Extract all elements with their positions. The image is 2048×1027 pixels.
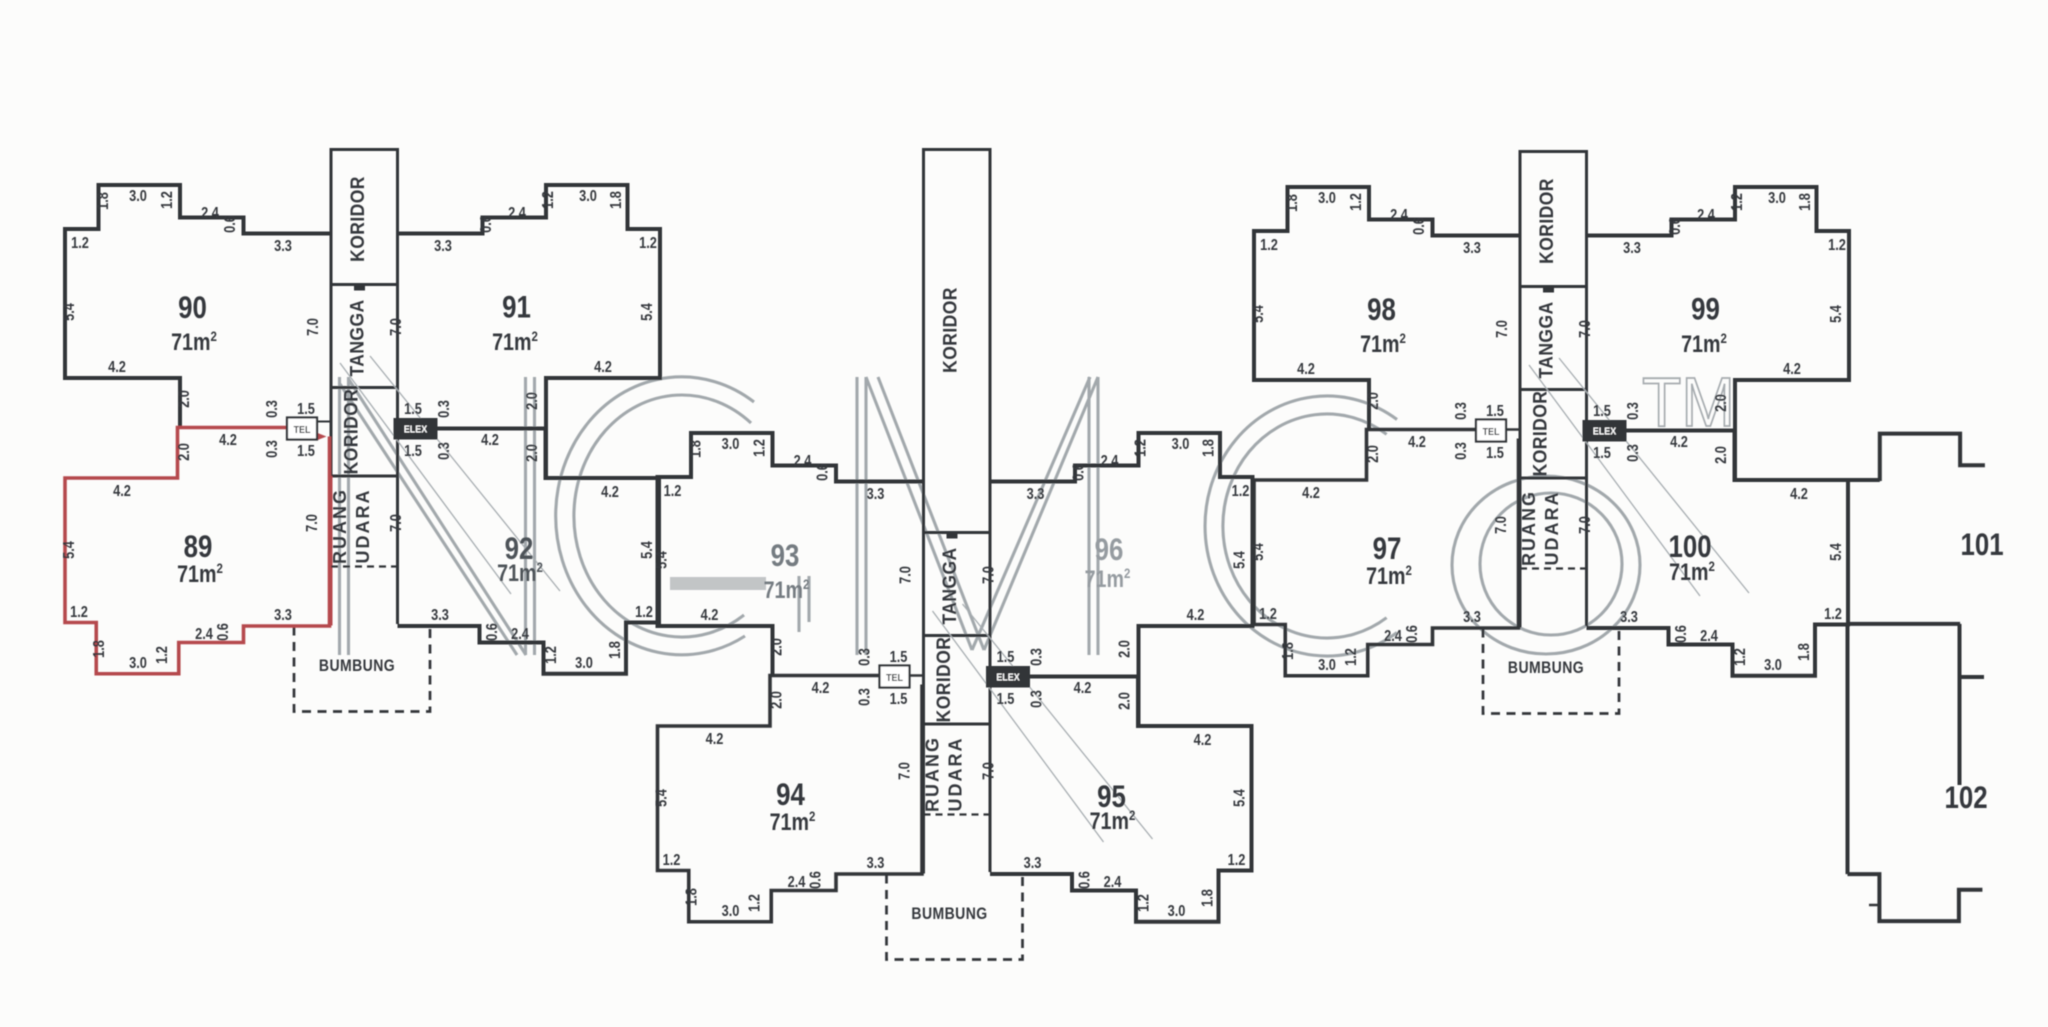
svg-text:0.6: 0.6 — [478, 215, 496, 233]
svg-text:3.3: 3.3 — [431, 607, 449, 625]
svg-text:4.2: 4.2 — [1194, 732, 1212, 750]
svg-text:7.0: 7.0 — [1494, 320, 1512, 338]
svg-text:7.0: 7.0 — [304, 514, 322, 532]
svg-text:1.5: 1.5 — [890, 649, 908, 667]
svg-text:TANGGA: TANGGA — [346, 299, 368, 376]
svg-text:1.2: 1.2 — [1132, 439, 1150, 457]
svg-text:1.2: 1.2 — [635, 604, 653, 622]
svg-text:1.8: 1.8 — [1280, 642, 1298, 660]
svg-text:2.4: 2.4 — [1697, 207, 1715, 225]
svg-text:KORIDOR: KORIDOR — [340, 389, 362, 475]
svg-text:1.5: 1.5 — [297, 443, 315, 461]
svg-text:0.6: 0.6 — [215, 623, 233, 641]
svg-text:4.2: 4.2 — [1187, 607, 1205, 625]
svg-text:2.4: 2.4 — [1101, 453, 1119, 471]
svg-text:3.0: 3.0 — [1768, 190, 1786, 208]
svg-text:1.8: 1.8 — [687, 440, 705, 458]
svg-text:2.0: 2.0 — [768, 691, 786, 709]
svg-text:1.2: 1.2 — [1348, 193, 1366, 211]
svg-text:7.0: 7.0 — [980, 566, 998, 584]
svg-text:1.2: 1.2 — [543, 646, 561, 664]
svg-text:7.0: 7.0 — [896, 762, 914, 780]
svg-text:0.3: 0.3 — [264, 400, 282, 418]
svg-text:1.5: 1.5 — [1593, 445, 1611, 463]
svg-text:7.0: 7.0 — [388, 318, 406, 336]
svg-text:3.0: 3.0 — [1172, 436, 1190, 454]
svg-text:1.8: 1.8 — [95, 192, 113, 210]
svg-text:7.0: 7.0 — [388, 514, 406, 532]
svg-text:0.3: 0.3 — [856, 648, 874, 666]
svg-text:5.4: 5.4 — [1828, 543, 1846, 561]
svg-text:1.5: 1.5 — [890, 691, 908, 709]
svg-text:1.2: 1.2 — [751, 439, 769, 457]
svg-text:2.0: 2.0 — [768, 638, 786, 656]
svg-text:3.0: 3.0 — [1318, 657, 1336, 675]
svg-text:7.0: 7.0 — [897, 566, 915, 584]
svg-text:3.0: 3.0 — [722, 903, 740, 921]
svg-text:2.4: 2.4 — [1390, 207, 1408, 225]
svg-text:2.0: 2.0 — [1365, 392, 1383, 410]
svg-text:5.4: 5.4 — [653, 789, 671, 807]
svg-text:1.5: 1.5 — [404, 401, 422, 419]
svg-text:2.4: 2.4 — [1104, 874, 1122, 892]
svg-text:4.2: 4.2 — [1297, 361, 1315, 379]
svg-text:BUMBUNG: BUMBUNG — [319, 657, 395, 675]
svg-text:3.3: 3.3 — [1463, 240, 1481, 258]
svg-text:BUMBUNG: BUMBUNG — [911, 905, 987, 923]
svg-text:71m2: 71m2 — [1085, 565, 1131, 593]
svg-text:0.6: 0.6 — [814, 463, 832, 481]
svg-text:1.2: 1.2 — [1260, 237, 1278, 255]
svg-text:ELEX: ELEX — [996, 672, 1020, 684]
svg-text:0.3: 0.3 — [264, 440, 282, 458]
svg-text:ELEX: ELEX — [404, 424, 428, 436]
svg-text:2.0: 2.0 — [1713, 446, 1731, 464]
svg-text:2.0: 2.0 — [1713, 394, 1731, 412]
svg-text:1.2: 1.2 — [1343, 648, 1361, 666]
svg-text:2.0: 2.0 — [176, 390, 194, 408]
svg-text:1.8: 1.8 — [1199, 889, 1217, 907]
svg-text:TEL: TEL — [886, 672, 903, 684]
svg-text:ELEX: ELEX — [1593, 426, 1617, 438]
svg-text:71m2: 71m2 — [1681, 330, 1727, 358]
svg-text:KORIDOR: KORIDOR — [1535, 178, 1557, 264]
svg-text:0.6: 0.6 — [1404, 625, 1422, 643]
svg-text:71m2: 71m2 — [492, 328, 538, 356]
svg-text:0.3: 0.3 — [1028, 690, 1046, 708]
svg-text:2.0: 2.0 — [1116, 640, 1134, 658]
svg-text:2.0: 2.0 — [524, 392, 542, 410]
svg-text:2.4: 2.4 — [794, 453, 812, 471]
svg-text:1.5: 1.5 — [997, 649, 1015, 667]
svg-text:KORIDOR: KORIDOR — [1529, 391, 1551, 477]
svg-text:2.4: 2.4 — [788, 874, 806, 892]
svg-text:3.0: 3.0 — [579, 188, 597, 206]
svg-text:7.0: 7.0 — [1577, 320, 1595, 338]
svg-text:3.3: 3.3 — [274, 238, 292, 256]
svg-text:1.2: 1.2 — [1259, 606, 1277, 624]
svg-text:2.0: 2.0 — [1116, 692, 1134, 710]
svg-text:0.6: 0.6 — [1070, 463, 1088, 481]
svg-text:0.6: 0.6 — [1411, 217, 1429, 235]
svg-text:1.8: 1.8 — [608, 191, 626, 209]
svg-text:1.2: 1.2 — [639, 235, 657, 253]
svg-text:4.2: 4.2 — [1790, 486, 1808, 504]
svg-text:1.2: 1.2 — [1135, 894, 1153, 912]
svg-text:4.2: 4.2 — [1670, 434, 1688, 452]
svg-text:1.2: 1.2 — [1828, 237, 1846, 255]
svg-text:3.0: 3.0 — [722, 436, 740, 454]
svg-text:0.6: 0.6 — [807, 871, 825, 889]
svg-text:1.5: 1.5 — [997, 691, 1015, 709]
svg-text:2.0: 2.0 — [176, 443, 194, 461]
svg-text:102: 102 — [1944, 781, 1987, 816]
svg-text:99: 99 — [1691, 292, 1720, 327]
svg-text:96: 96 — [1095, 533, 1124, 568]
svg-text:3.0: 3.0 — [129, 655, 147, 673]
svg-text:71m2: 71m2 — [1366, 562, 1412, 590]
svg-text:1.2: 1.2 — [159, 191, 177, 209]
svg-text:4.2: 4.2 — [219, 432, 237, 450]
svg-text:4.2: 4.2 — [1074, 680, 1092, 698]
svg-text:1.5: 1.5 — [1486, 445, 1504, 463]
svg-text:TANGGA: TANGGA — [938, 547, 960, 624]
svg-text:0.3: 0.3 — [436, 400, 454, 418]
svg-text:2.4: 2.4 — [1384, 628, 1402, 646]
svg-text:UDARA: UDARA — [353, 489, 373, 564]
svg-text:1.2: 1.2 — [1732, 648, 1750, 666]
svg-text:2.4: 2.4 — [511, 626, 529, 644]
svg-text:4.2: 4.2 — [594, 359, 612, 377]
svg-text:71m2: 71m2 — [1669, 558, 1715, 586]
svg-text:91: 91 — [502, 290, 531, 325]
svg-text:1.2: 1.2 — [663, 852, 681, 870]
svg-text:0.6: 0.6 — [1076, 871, 1094, 889]
svg-text:0.3: 0.3 — [1625, 444, 1643, 462]
svg-text:71m2: 71m2 — [1360, 330, 1406, 358]
svg-text:7.0: 7.0 — [305, 318, 323, 336]
svg-text:1.8: 1.8 — [1200, 439, 1218, 457]
svg-text:2.0: 2.0 — [1365, 445, 1383, 463]
svg-text:2.4: 2.4 — [508, 205, 526, 223]
svg-text:KORIDOR: KORIDOR — [346, 176, 368, 262]
svg-text:1.8: 1.8 — [1797, 193, 1815, 211]
svg-text:7.0: 7.0 — [980, 762, 998, 780]
svg-text:3.3: 3.3 — [867, 855, 885, 873]
svg-text:1.5: 1.5 — [404, 443, 422, 461]
svg-text:5.4: 5.4 — [1231, 789, 1249, 807]
svg-text:0.6: 0.6 — [484, 623, 502, 641]
svg-text:1.8: 1.8 — [91, 640, 109, 658]
svg-text:3.0: 3.0 — [1764, 657, 1782, 675]
svg-text:5.4: 5.4 — [653, 551, 671, 569]
svg-text:0.3: 0.3 — [436, 442, 454, 460]
svg-text:4.2: 4.2 — [1302, 485, 1320, 503]
svg-text:3.3: 3.3 — [1620, 609, 1638, 627]
svg-text:BUMBUNG: BUMBUNG — [1508, 659, 1584, 677]
svg-text:1.5: 1.5 — [1486, 403, 1504, 421]
svg-text:5.4: 5.4 — [61, 303, 79, 321]
svg-text:71m2: 71m2 — [1090, 807, 1136, 835]
svg-text:3.3: 3.3 — [1623, 240, 1641, 258]
svg-text:3.3: 3.3 — [1024, 855, 1042, 873]
svg-text:101: 101 — [1960, 528, 2003, 563]
svg-text:3.3: 3.3 — [867, 486, 885, 504]
svg-text:0.6: 0.6 — [1673, 625, 1691, 643]
svg-text:3.0: 3.0 — [1318, 190, 1336, 208]
svg-text:71m2: 71m2 — [177, 560, 223, 588]
svg-text:2.4: 2.4 — [201, 205, 219, 223]
svg-text:3.3: 3.3 — [1463, 609, 1481, 627]
svg-text:0.3: 0.3 — [856, 688, 874, 706]
svg-text:1.2: 1.2 — [70, 604, 88, 622]
svg-text:1.8: 1.8 — [607, 641, 625, 659]
svg-text:71m2: 71m2 — [171, 328, 217, 356]
svg-text:4.2: 4.2 — [601, 484, 619, 502]
svg-text:1.2: 1.2 — [1232, 483, 1250, 501]
svg-text:98: 98 — [1367, 293, 1396, 328]
svg-text:UDARA: UDARA — [946, 737, 966, 812]
svg-text:1.2: 1.2 — [540, 191, 558, 209]
svg-text:RUANG: RUANG — [923, 736, 943, 812]
svg-text:71m2: 71m2 — [497, 559, 543, 587]
svg-text:2.0: 2.0 — [524, 444, 542, 462]
svg-text:1.2: 1.2 — [664, 483, 682, 501]
svg-text:RUANG: RUANG — [330, 488, 350, 564]
svg-text:71m2: 71m2 — [770, 808, 816, 836]
svg-text:4.2: 4.2 — [1408, 434, 1426, 452]
svg-text:TEL: TEL — [294, 424, 311, 436]
svg-text:7.0: 7.0 — [1493, 516, 1511, 534]
svg-text:3.3: 3.3 — [434, 238, 452, 256]
svg-text:0.3: 0.3 — [1453, 442, 1471, 460]
svg-text:4.2: 4.2 — [113, 483, 131, 501]
svg-text:RUANG: RUANG — [1519, 490, 1539, 566]
svg-text:KORIDOR: KORIDOR — [939, 287, 961, 373]
svg-text:0.3: 0.3 — [1625, 402, 1643, 420]
svg-text:0.6: 0.6 — [222, 215, 240, 233]
svg-text:5.4: 5.4 — [1250, 305, 1268, 323]
svg-text:0.6: 0.6 — [1667, 217, 1685, 235]
svg-text:5.4: 5.4 — [639, 303, 657, 321]
svg-text:5.4: 5.4 — [1250, 543, 1268, 561]
svg-text:TEL: TEL — [1483, 426, 1500, 438]
svg-text:1.2: 1.2 — [1729, 193, 1747, 211]
svg-text:4.2: 4.2 — [108, 359, 126, 377]
svg-text:4.2: 4.2 — [812, 680, 830, 698]
svg-text:1.2: 1.2 — [1824, 606, 1842, 624]
svg-text:3.0: 3.0 — [575, 655, 593, 673]
svg-text:1.8: 1.8 — [1796, 643, 1814, 661]
svg-text:1.5: 1.5 — [297, 401, 315, 419]
svg-text:4.2: 4.2 — [1783, 361, 1801, 379]
svg-text:2.4: 2.4 — [1700, 628, 1718, 646]
svg-text:UDARA: UDARA — [1542, 491, 1562, 566]
svg-text:KORIDOR: KORIDOR — [932, 637, 954, 723]
svg-text:71m2: 71m2 — [764, 576, 810, 604]
svg-text:4.2: 4.2 — [706, 731, 724, 749]
svg-text:TANGGA: TANGGA — [1535, 301, 1557, 378]
svg-text:1.8: 1.8 — [683, 888, 701, 906]
svg-text:1.5: 1.5 — [1593, 403, 1611, 421]
svg-text:1.8: 1.8 — [1284, 194, 1302, 212]
svg-text:3.0: 3.0 — [129, 188, 147, 206]
svg-text:1.2: 1.2 — [1228, 852, 1246, 870]
svg-text:1.2: 1.2 — [154, 646, 172, 664]
svg-text:93: 93 — [771, 539, 800, 574]
svg-text:3.0: 3.0 — [1168, 903, 1186, 921]
svg-text:2.4: 2.4 — [195, 626, 213, 644]
svg-text:5.4: 5.4 — [1231, 551, 1249, 569]
svg-text:0.3: 0.3 — [1453, 402, 1471, 420]
svg-text:3.3: 3.3 — [274, 607, 292, 625]
svg-text:5.4: 5.4 — [61, 541, 79, 559]
svg-text:4.2: 4.2 — [701, 607, 719, 625]
svg-text:0.3: 0.3 — [1028, 648, 1046, 666]
svg-text:7.0: 7.0 — [1577, 516, 1595, 534]
svg-text:5.4: 5.4 — [1828, 305, 1846, 323]
svg-text:3.3: 3.3 — [1027, 486, 1045, 504]
svg-text:90: 90 — [178, 291, 207, 326]
svg-text:4.2: 4.2 — [481, 432, 499, 450]
svg-text:1.2: 1.2 — [71, 235, 89, 253]
svg-text:1.2: 1.2 — [746, 894, 764, 912]
